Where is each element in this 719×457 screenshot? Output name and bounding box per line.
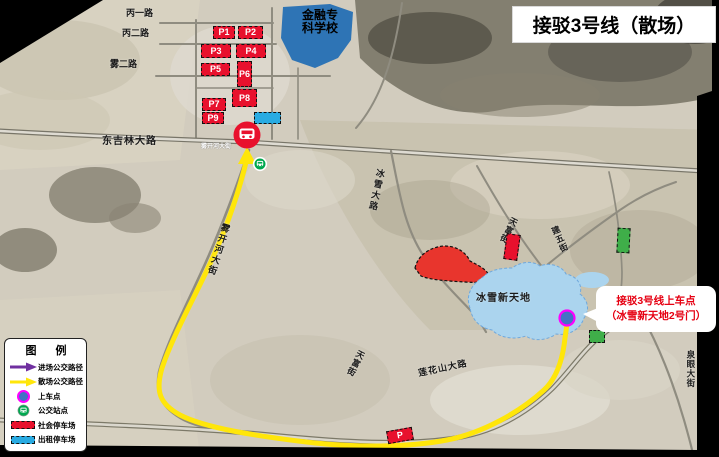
bus-stop-icon xyxy=(254,158,267,171)
parking-p6: P6 xyxy=(237,61,252,87)
legend-row-busstop: 公交站点 xyxy=(8,404,84,419)
road-label-quanyan: 泉眼大街 xyxy=(686,350,695,388)
parking-p5: P5 xyxy=(201,63,230,76)
bus-terminus-icon xyxy=(234,122,261,149)
inbound-route-arrow-icon xyxy=(8,362,38,372)
boarding-point-icon xyxy=(560,311,575,326)
page-title: 接驳3号线（散场） xyxy=(513,7,715,42)
legend-row-inbound: 进场公交路径 xyxy=(8,360,84,375)
page-title-text: 接驳3号线（散场） xyxy=(533,11,696,38)
parking-p3: P3 xyxy=(201,44,231,58)
parking-p8: P8 xyxy=(232,89,257,107)
boarding-dot-icon xyxy=(8,390,38,403)
parking-p2: P2 xyxy=(238,26,263,39)
legend-row-dispersal: 散场公交路径 xyxy=(8,375,84,390)
callout-line1: 接驳3号线上车点 xyxy=(616,294,695,309)
road-label-wuer: 雾二路 xyxy=(110,60,137,69)
legend-label-social-parking: 社会停车场 xyxy=(38,420,76,431)
road-label-dongjilin: 东吉林大路 xyxy=(102,137,157,148)
parking-p1: P1 xyxy=(213,26,235,39)
parking-p7: P7 xyxy=(202,98,226,111)
green-parking-box-gate xyxy=(589,330,605,343)
school-label-line2: 科学校 xyxy=(294,22,346,35)
legend-title: 图 例 xyxy=(8,342,84,358)
shuttle-map-page: 丙一路 丙二路 雾二路 东吉林大路 雾开河大街 雾开河大街 冰雪大路 天富街 建… xyxy=(0,0,719,457)
boarding-point-callout: 接驳3号线上车点 （冰雪新天地2号门） xyxy=(596,286,716,332)
legend-label-taxi-parking: 出租停车场 xyxy=(38,434,76,445)
legend: 图 例 进场公交路径 散场公交路径 上车点 公交站点 社会停车场 xyxy=(4,338,87,452)
legend-row-taxi-parking: 出租停车场 xyxy=(8,433,84,448)
legend-label-busstop: 公交站点 xyxy=(38,405,68,416)
parking-p9: P9 xyxy=(202,112,224,124)
callout-line2: （冰雪新天地2号门） xyxy=(606,309,706,324)
school-area-label: 金融专 科学校 xyxy=(294,9,346,35)
dispersal-route-arrow-icon xyxy=(8,377,38,387)
road-label-bingyi: 丙一路 xyxy=(126,9,153,18)
legend-label-dispersal: 散场公交路径 xyxy=(38,376,83,387)
legend-label-inbound: 进场公交路径 xyxy=(38,362,83,373)
legend-row-social-parking: 社会停车场 xyxy=(8,418,84,433)
taxi-parking-swatch xyxy=(8,436,38,444)
green-parking-box-east xyxy=(616,228,630,254)
social-parking-swatch xyxy=(8,421,38,429)
road-label-binger: 丙二路 xyxy=(122,29,149,38)
legend-label-boarding: 上车点 xyxy=(38,391,61,402)
bus-stop-legend-icon xyxy=(8,404,38,417)
legend-row-boarding: 上车点 xyxy=(8,389,84,404)
ice-world-label: 冰雪新天地 xyxy=(476,294,531,305)
road-label-wukaihe-small: 雾开河大街 xyxy=(201,141,231,150)
parking-p4: P4 xyxy=(236,44,266,58)
map-canvas xyxy=(0,0,719,457)
taxi-parking-box xyxy=(254,112,281,124)
